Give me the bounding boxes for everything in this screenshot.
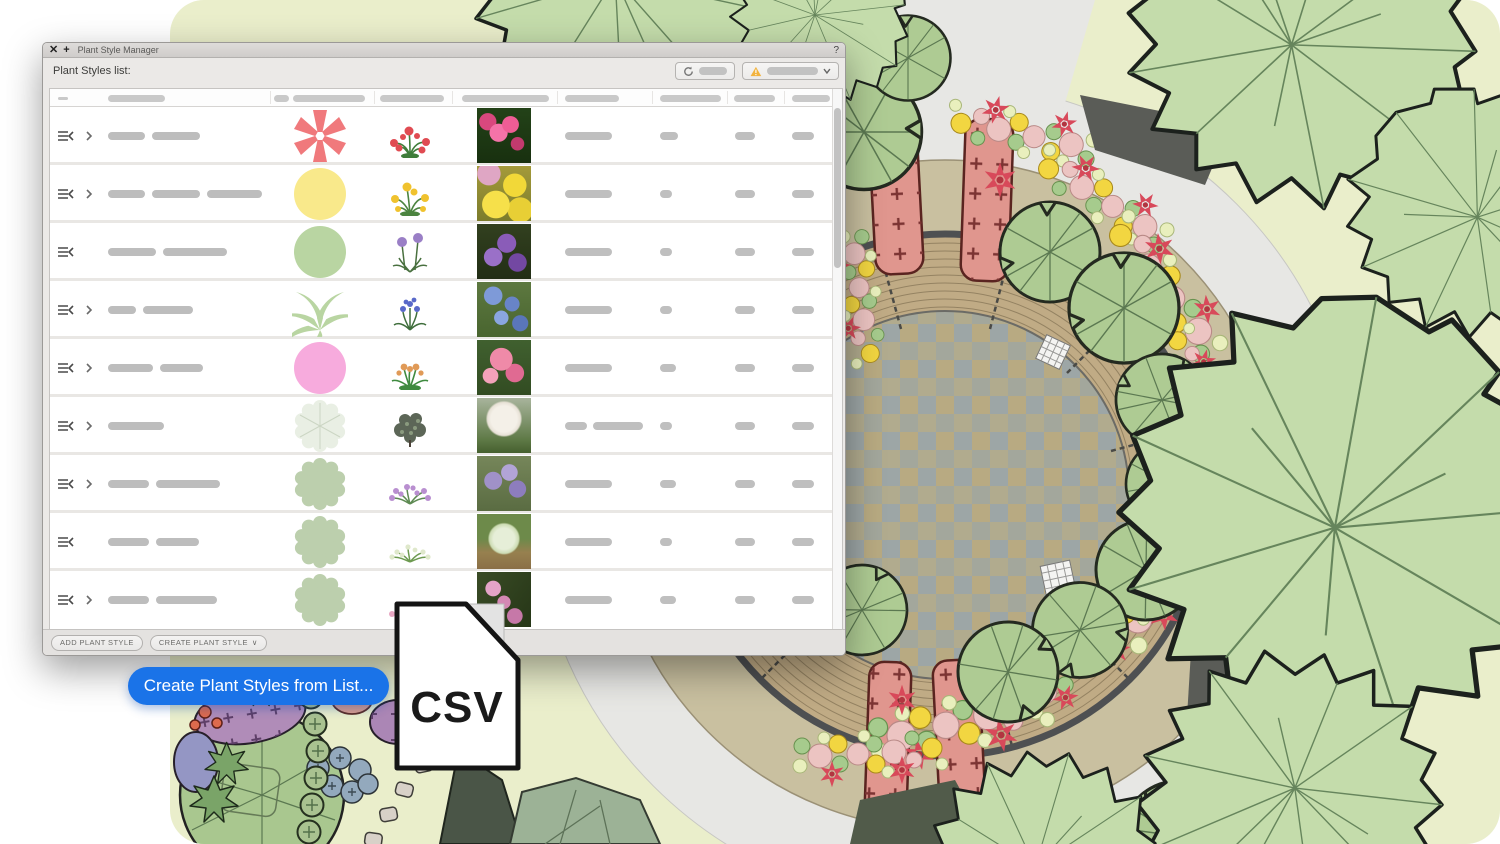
table-scrollbar[interactable]	[832, 89, 842, 632]
name-placeholders	[108, 422, 164, 430]
data-placeholder	[660, 364, 676, 372]
plant-symbol-green-scalloped-circle	[292, 514, 348, 570]
name-placeholders	[108, 480, 220, 488]
drag-handle-icon[interactable]	[57, 188, 74, 200]
refresh-label-placeholder	[699, 67, 727, 75]
header-placeholder	[734, 95, 775, 102]
header-placeholder	[274, 95, 289, 102]
plant-symbol-red-asterisk	[292, 108, 348, 164]
plant-symbol-green-scalloped-circle	[292, 456, 348, 512]
dropdown-label-placeholder	[767, 67, 818, 75]
data-placeholder	[660, 248, 672, 256]
data-placeholder	[660, 306, 672, 314]
data-placeholder	[660, 132, 678, 140]
data-placeholder	[792, 132, 814, 140]
data-placeholder	[660, 422, 672, 430]
plant-illustration	[387, 404, 433, 448]
plant-illustration	[387, 230, 433, 274]
plant-photo	[477, 398, 531, 453]
plant-illustration	[387, 462, 433, 506]
data-placeholder	[565, 306, 612, 314]
data-placeholder	[565, 364, 612, 372]
plant-style-row[interactable]	[50, 281, 842, 339]
window-title: Plant Style Manager	[78, 45, 159, 55]
scrollbar-thumb[interactable]	[834, 108, 841, 268]
plant-style-row[interactable]	[50, 339, 842, 397]
chevron-down-icon	[823, 68, 831, 74]
data-placeholder	[593, 422, 643, 430]
dialog-toolbar	[675, 62, 839, 80]
drag-handle-icon[interactable]	[57, 130, 74, 142]
expand-chevron-icon[interactable]	[85, 363, 93, 373]
data-placeholder	[660, 596, 676, 604]
create-plant-style-button[interactable]: CREATE PLANT STYLE ∨	[150, 635, 267, 651]
header-placeholder	[108, 95, 165, 102]
plant-style-row[interactable]	[50, 107, 842, 165]
data-placeholder	[735, 364, 755, 372]
header-placeholder	[660, 95, 721, 102]
plant-style-row[interactable]	[50, 223, 842, 281]
data-placeholder	[735, 538, 755, 546]
warning-triangle-icon	[750, 66, 762, 77]
name-placeholders	[108, 596, 217, 604]
header-placeholder	[565, 95, 619, 102]
data-placeholder	[792, 248, 814, 256]
data-placeholder	[792, 422, 814, 430]
name-placeholders	[108, 364, 203, 372]
close-icon[interactable]: ✕	[49, 45, 58, 56]
header-placeholder	[293, 95, 365, 102]
name-placeholders	[108, 132, 200, 140]
data-placeholder	[735, 248, 755, 256]
plant-style-row[interactable]	[50, 513, 842, 571]
header-placeholder	[380, 95, 444, 102]
data-placeholder	[792, 364, 814, 372]
help-icon[interactable]: ?	[833, 45, 839, 56]
expand-chevron-icon[interactable]	[85, 479, 93, 489]
plant-illustration	[387, 520, 433, 564]
plant-photo	[477, 514, 531, 569]
plant-symbol-palm	[292, 282, 348, 338]
data-placeholder	[792, 538, 814, 546]
expand-chevron-icon[interactable]	[85, 595, 93, 605]
drag-handle-icon[interactable]	[57, 594, 74, 606]
plant-illustration	[387, 114, 433, 158]
expand-chevron-icon[interactable]	[85, 131, 93, 141]
plant-style-row[interactable]	[50, 165, 842, 223]
expand-chevron-icon[interactable]	[85, 421, 93, 431]
data-placeholder	[565, 596, 612, 604]
plant-photo	[477, 166, 531, 221]
create-plant-styles-from-list-button[interactable]: Create Plant Styles from List...	[128, 667, 389, 705]
data-placeholder	[735, 190, 755, 198]
plant-styles-table	[49, 88, 843, 633]
create-plant-style-label: CREATE PLANT STYLE	[159, 638, 248, 647]
data-placeholder	[735, 132, 755, 140]
plant-photo	[477, 456, 531, 511]
plant-photo	[477, 224, 531, 279]
data-placeholder	[565, 480, 612, 488]
plant-illustration	[387, 288, 433, 332]
data-placeholder	[660, 538, 672, 546]
add-plant-style-label: ADD PLANT STYLE	[60, 638, 134, 647]
plant-style-row[interactable]	[50, 455, 842, 513]
data-placeholder	[565, 132, 612, 140]
data-placeholder	[735, 422, 755, 430]
table-header-row	[50, 89, 842, 107]
plant-style-manager-window: ✕ + Plant Style Manager ? Plant Styles l…	[42, 42, 846, 656]
plant-photo	[477, 340, 531, 395]
data-placeholder	[792, 306, 814, 314]
chevron-down-icon: ∨	[252, 638, 258, 647]
plant-photo	[477, 282, 531, 337]
plant-symbol-green-scalloped-circle	[292, 572, 348, 628]
data-placeholder	[660, 190, 672, 198]
data-placeholder	[792, 480, 814, 488]
name-placeholders	[108, 248, 227, 256]
drag-handle-icon[interactable]	[57, 304, 74, 316]
csv-file-icon: CSV	[391, 596, 525, 774]
data-placeholder	[792, 190, 814, 198]
plant-style-row[interactable]	[50, 397, 842, 455]
refresh-button[interactable]	[675, 62, 735, 80]
drag-handle-icon[interactable]	[57, 536, 74, 548]
new-window-icon[interactable]: +	[63, 45, 69, 56]
plant-symbol-pale-scalloped-circle	[292, 398, 348, 454]
data-placeholder	[735, 306, 755, 314]
data-placeholder	[660, 480, 676, 488]
data-placeholder	[735, 596, 755, 604]
plant-symbol-pink-circle	[292, 340, 348, 396]
csv-label: CSV	[410, 683, 503, 732]
add-plant-style-button[interactable]: ADD PLANT STYLE	[51, 635, 143, 651]
data-placeholder	[565, 190, 612, 198]
plant-styles-list-label: Plant Styles list:	[53, 65, 131, 77]
refresh-arrow-icon	[683, 66, 694, 77]
plant-illustration	[387, 172, 433, 216]
window-titlebar[interactable]: ✕ + Plant Style Manager ?	[43, 43, 845, 58]
data-placeholder	[565, 248, 612, 256]
header-placeholder	[462, 95, 549, 102]
symbol-set-dropdown[interactable]	[742, 62, 839, 80]
drag-handle-icon[interactable]	[57, 362, 74, 374]
name-placeholders	[108, 306, 193, 314]
plant-illustration	[387, 346, 433, 390]
header-placeholder	[58, 97, 68, 100]
data-placeholder	[565, 538, 612, 546]
expand-chevron-icon[interactable]	[85, 305, 93, 315]
header-placeholder	[792, 95, 830, 102]
plant-symbol-green-circle	[292, 224, 348, 280]
name-placeholders	[108, 190, 262, 198]
expand-chevron-icon[interactable]	[85, 189, 93, 199]
table-body	[50, 107, 842, 629]
data-placeholder	[792, 596, 814, 604]
name-placeholders	[108, 538, 199, 546]
drag-handle-icon[interactable]	[57, 246, 74, 258]
drag-handle-icon[interactable]	[57, 478, 74, 490]
data-placeholder	[565, 422, 587, 430]
data-placeholder	[735, 480, 755, 488]
plant-symbol-yellow-circle	[292, 166, 348, 222]
drag-handle-icon[interactable]	[57, 420, 74, 432]
plant-photo	[477, 108, 531, 163]
